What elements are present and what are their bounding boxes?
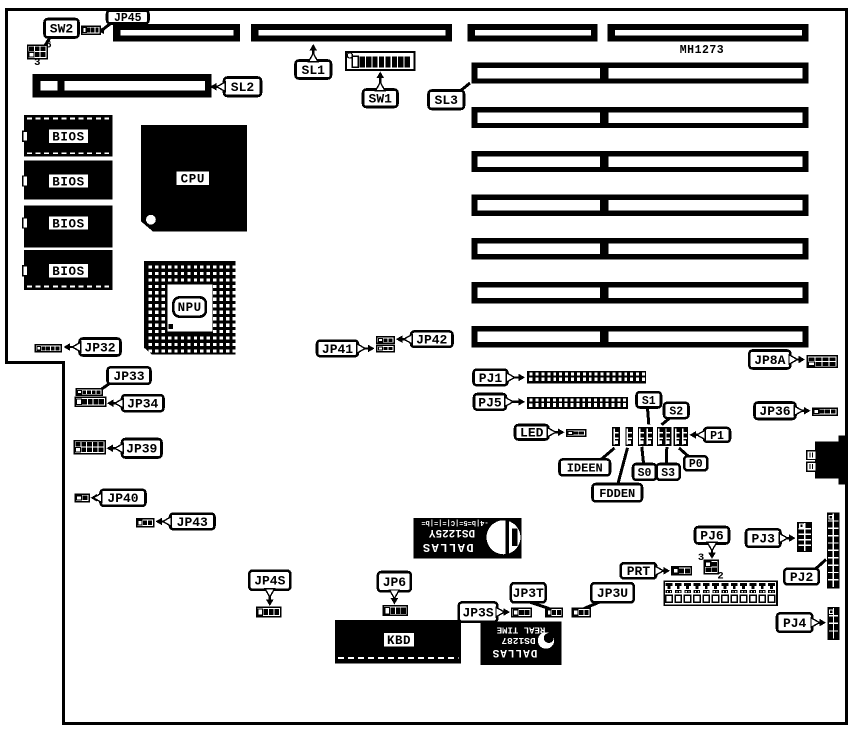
- svg-text:JP33: JP33: [113, 369, 144, 384]
- svg-text:FDDEN: FDDEN: [599, 487, 635, 501]
- svg-text:P0: P0: [689, 458, 703, 471]
- svg-text:JP43: JP43: [177, 515, 208, 530]
- svg-text:S3: S3: [661, 467, 675, 480]
- svg-text:PRT: PRT: [627, 564, 651, 579]
- svg-text:SW2: SW2: [50, 22, 74, 37]
- svg-text:-4|b=5=|C|=|=|b=: -4|b=5=|C|=|=|b=: [421, 518, 488, 526]
- svg-text:PJ6: PJ6: [700, 529, 724, 544]
- svg-text:SW1: SW1: [369, 92, 393, 107]
- svg-text:PJ4: PJ4: [783, 616, 807, 631]
- svg-text:REAL TIME: REAL TIME: [496, 625, 545, 635]
- svg-text:DS1287: DS1287: [501, 635, 536, 646]
- svg-text:SL2: SL2: [231, 80, 255, 95]
- svg-text:DS1225Y: DS1225Y: [429, 526, 476, 538]
- svg-text:JP3T: JP3T: [513, 586, 544, 601]
- svg-text:JP6: JP6: [383, 575, 407, 590]
- svg-text:3: 3: [698, 552, 704, 564]
- svg-text:S2: S2: [669, 405, 683, 418]
- svg-text:JP3U: JP3U: [597, 586, 628, 601]
- svg-text:PJ5: PJ5: [478, 395, 502, 410]
- svg-text:JP41: JP41: [322, 342, 353, 357]
- svg-text:DALLAS: DALLAS: [492, 646, 538, 658]
- svg-text:SL1: SL1: [302, 63, 326, 78]
- svg-text:JP32: JP32: [84, 340, 115, 355]
- svg-text:6: 6: [45, 40, 51, 52]
- svg-text:BIOS: BIOS: [52, 131, 84, 145]
- svg-text:SL3: SL3: [435, 93, 459, 108]
- svg-text:BIOS: BIOS: [52, 217, 84, 231]
- svg-text:S0: S0: [638, 467, 652, 480]
- svg-text:PJ2: PJ2: [790, 570, 814, 585]
- svg-text:DALLAS: DALLAS: [421, 540, 473, 554]
- svg-text:BIOS: BIOS: [52, 175, 84, 189]
- svg-text:JP3S: JP3S: [462, 605, 493, 620]
- svg-text:JP8A: JP8A: [754, 353, 785, 368]
- svg-text:KBD: KBD: [387, 634, 411, 648]
- svg-text:BIOS: BIOS: [52, 265, 84, 279]
- svg-text:LED: LED: [520, 426, 544, 441]
- svg-text:JP34: JP34: [127, 397, 158, 412]
- svg-text:JP36: JP36: [759, 404, 790, 419]
- svg-text:JP40: JP40: [107, 491, 138, 506]
- svg-text:S1: S1: [642, 395, 656, 408]
- svg-text:JP42: JP42: [416, 333, 447, 348]
- svg-text:P1: P1: [710, 430, 724, 443]
- svg-text:MH1273: MH1273: [680, 44, 724, 57]
- svg-text:CPU: CPU: [181, 172, 205, 186]
- svg-text:PJ3: PJ3: [752, 532, 776, 547]
- svg-text:JP4S: JP4S: [254, 574, 285, 589]
- svg-text:PJ1: PJ1: [479, 371, 503, 386]
- svg-text:NPU: NPU: [178, 301, 202, 315]
- svg-text:JP45: JP45: [114, 12, 142, 25]
- svg-text:3: 3: [34, 57, 40, 69]
- svg-text:JP39: JP39: [126, 442, 157, 457]
- svg-text:IDEEN: IDEEN: [567, 461, 603, 475]
